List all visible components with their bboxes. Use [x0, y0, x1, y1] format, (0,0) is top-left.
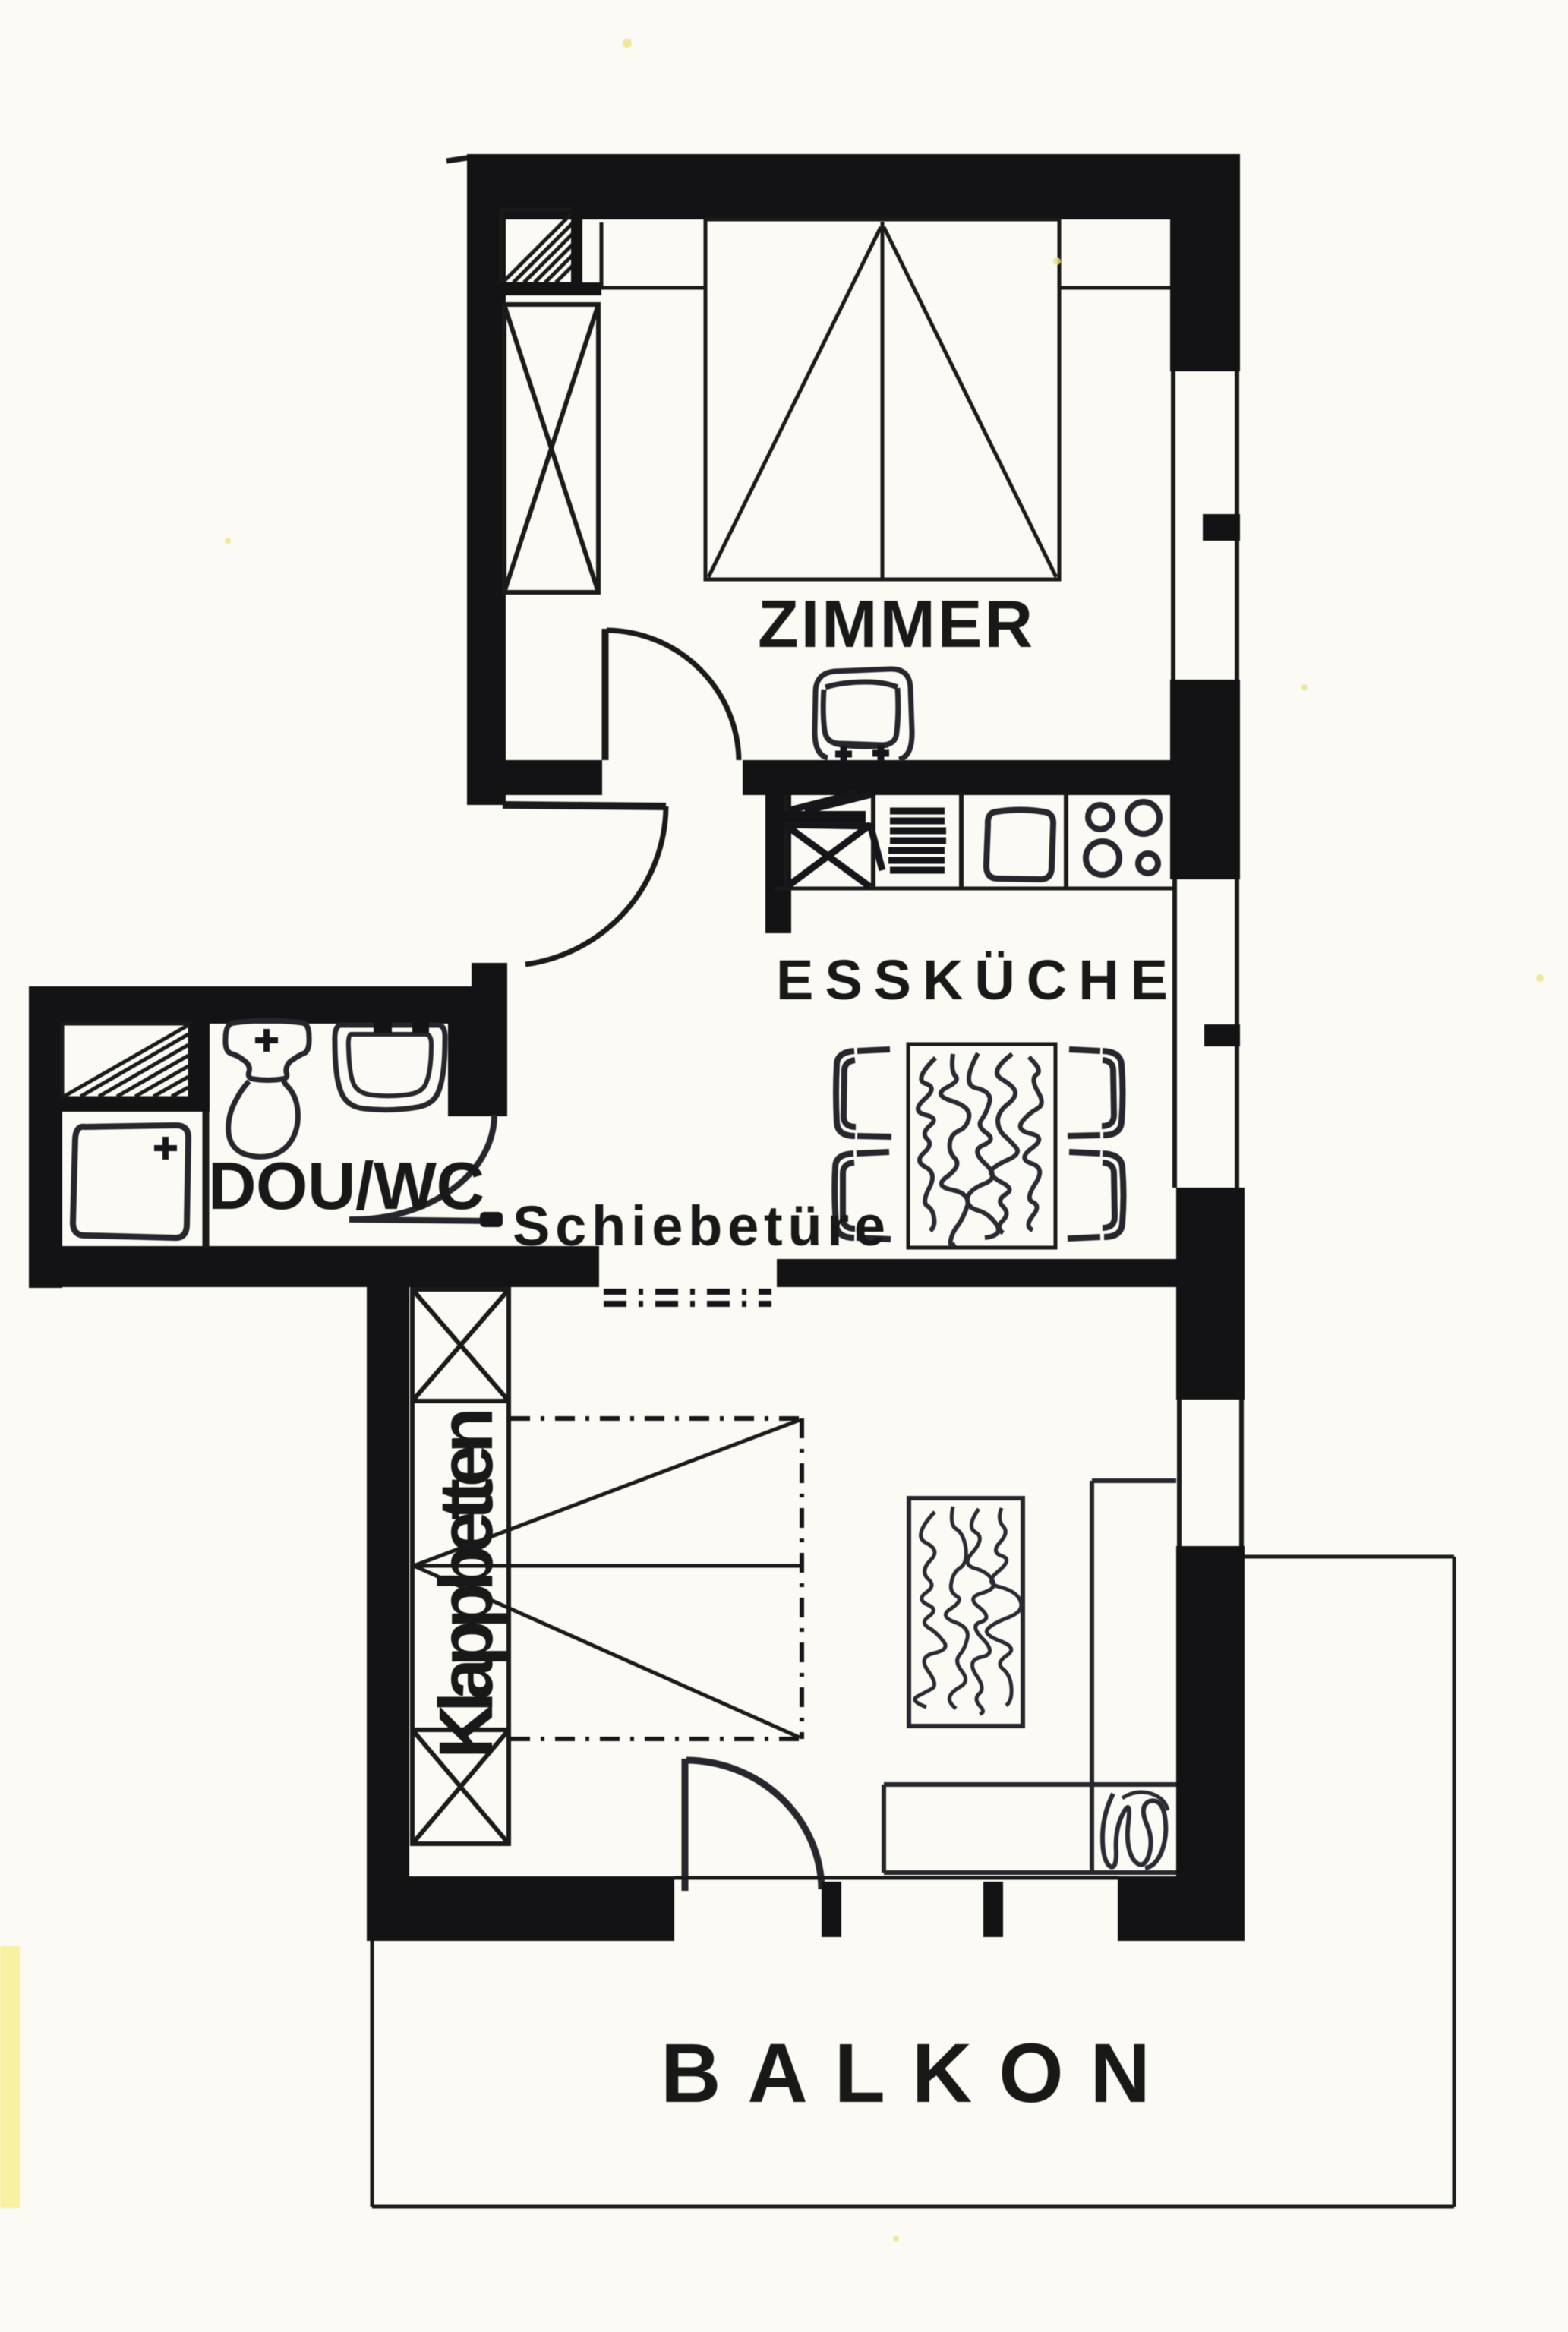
svg-text:Klappbetten: Klappbetten [424, 1407, 509, 1759]
svg-text:Schiebetüre: Schiebetüre [513, 1194, 885, 1258]
svg-text:DOU/WC: DOU/WC [208, 1148, 484, 1223]
